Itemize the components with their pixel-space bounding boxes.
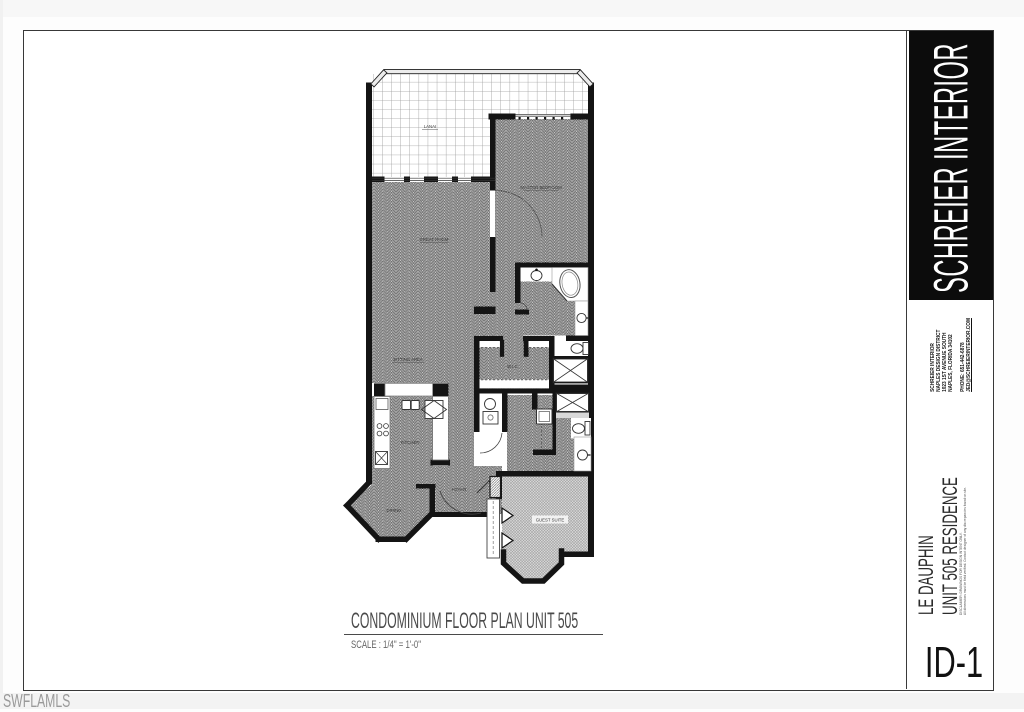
svg-text:LANAI: LANAI <box>424 124 436 129</box>
svg-text:GUEST SUITE: GUEST SUITE <box>536 518 565 523</box>
svg-text:MASTER BEDROOM: MASTER BEDROOM <box>520 185 562 190</box>
svg-text:GREAT ROOM: GREAT ROOM <box>420 237 449 242</box>
svg-text:FOYER: FOYER <box>452 487 467 492</box>
svg-text:W.I.C.: W.I.C. <box>507 364 519 369</box>
svg-text:KITCHEN: KITCHEN <box>401 440 420 445</box>
svg-text:SITTING AREA: SITTING AREA <box>393 357 423 362</box>
svg-text:DINING: DINING <box>386 508 402 513</box>
